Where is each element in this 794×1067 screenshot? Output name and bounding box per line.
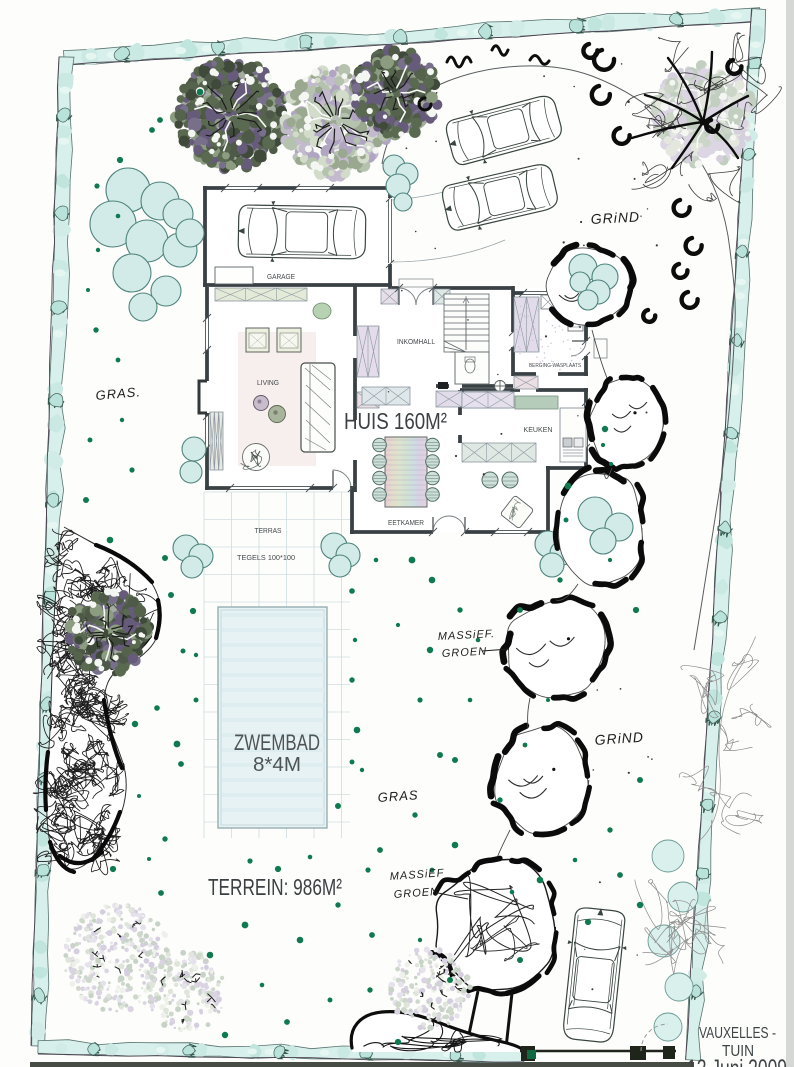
svg-text:ZWEMBAD: ZWEMBAD xyxy=(234,730,320,755)
svg-text:HUIS 160M²: HUIS 160M² xyxy=(344,408,447,434)
svg-text:GRiND: GRiND xyxy=(590,208,640,227)
svg-text:GARAGE: GARAGE xyxy=(267,272,295,281)
svg-text:TERRAS: TERRAS xyxy=(255,526,282,535)
svg-text:12 Juni 2009: 12 Juni 2009 xyxy=(687,1055,787,1067)
svg-text:BERGING-WASPLAATS: BERGING-WASPLAATS xyxy=(529,363,581,369)
svg-text:8*4M: 8*4M xyxy=(253,754,301,776)
svg-text:TERREIN: 986M²: TERREIN: 986M² xyxy=(208,874,342,900)
svg-text:LIVING: LIVING xyxy=(257,378,279,387)
svg-text:TEGELS 100*100: TEGELS 100*100 xyxy=(237,553,295,562)
svg-text:INKOMHALL: INKOMHALL xyxy=(397,337,435,346)
svg-text:EETKAMER: EETKAMER xyxy=(388,518,425,527)
svg-text:GRAS: GRAS xyxy=(377,787,419,805)
svg-text:GROEN: GROEN xyxy=(442,646,488,660)
svg-text:VAUXELLES -: VAUXELLES - xyxy=(699,1025,776,1042)
svg-text:KEUKEN: KEUKEN xyxy=(524,425,553,434)
